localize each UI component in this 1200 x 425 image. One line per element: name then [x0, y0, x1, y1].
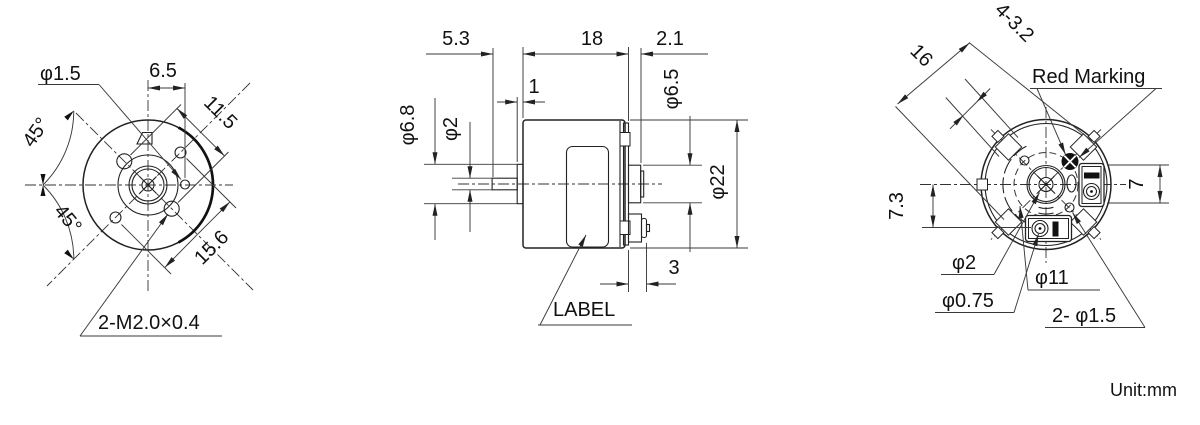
dim-text-4-3_2: 4-3.2	[990, 0, 1038, 47]
dim-text-6_5: 6.5	[149, 60, 177, 82]
label-area	[567, 147, 609, 248]
dim-text-phi1_5: φ1.5	[40, 63, 81, 85]
terminal-bottom	[1026, 216, 1072, 242]
dim-text-phi22: φ22	[707, 164, 729, 199]
dim-text-phi0_75: φ0.75	[942, 290, 994, 312]
dim-text-18: 18	[581, 28, 603, 50]
dim-3	[600, 243, 676, 292]
dim-text-15_6: 15.6	[190, 226, 233, 269]
pilot-hole-ne	[175, 147, 186, 158]
dim-phi6_5	[643, 116, 702, 252]
dim-45-top	[41, 109, 76, 185]
side-view: 5.3 18 2.1 1 φ6.8 φ2	[397, 28, 748, 325]
dim-text-phi2-rear: φ2	[952, 252, 976, 274]
dim-text-45-bottom: 45°	[49, 200, 85, 237]
dim-text-2-phi1_5: 2- φ1.5	[1052, 305, 1116, 327]
dim-text-5_3: 5.3	[442, 28, 470, 50]
red-marking-spot	[1062, 153, 1079, 170]
dim-text-phi11: φ11	[1035, 267, 1069, 289]
dim-text-7: 7	[1126, 178, 1148, 189]
front-view: 6.5 φ1.5 11.5 15.6 45°	[18, 60, 253, 336]
motor-dimensional-drawing: 6.5 φ1.5 11.5 15.6 45°	[0, 0, 1200, 425]
dim-text-phi6_8: φ6.8	[397, 105, 419, 146]
seam-tab	[137, 133, 152, 145]
dim-text-16: 16	[906, 40, 937, 71]
dim-text-7_3: 7.3	[886, 192, 908, 220]
cap-clip-top	[620, 133, 630, 147]
small-hole-east	[181, 180, 190, 189]
dim-text-red-marking: Red Marking	[1032, 66, 1145, 88]
dim-text-thread: 2-M2.0×0.4	[98, 312, 200, 334]
dim-text-3: 3	[668, 257, 679, 279]
dim-text-phi6_5: φ6.5	[661, 69, 683, 110]
dim-text-45-top: 45°	[18, 114, 53, 151]
dim-text-1: 1	[528, 76, 539, 98]
dim-text-label: LABEL	[553, 299, 615, 321]
unit-note: Unit:mm	[1110, 380, 1177, 400]
seam-tab-rear	[977, 179, 988, 190]
terminal-right	[1079, 164, 1104, 207]
dim-text-2_1: 2.1	[656, 28, 684, 50]
dim-text-phi2: φ2	[440, 117, 462, 141]
rear-view: 16 4-3.2 Red Marking 7	[886, 0, 1169, 327]
dim-6_5	[148, 83, 185, 178]
drawing-canvas: 6.5 φ1.5 11.5 15.6 45°	[0, 0, 1200, 425]
slot-hole	[1067, 175, 1076, 192]
dim-phi6_8	[424, 98, 517, 240]
dim-1	[497, 97, 545, 162]
